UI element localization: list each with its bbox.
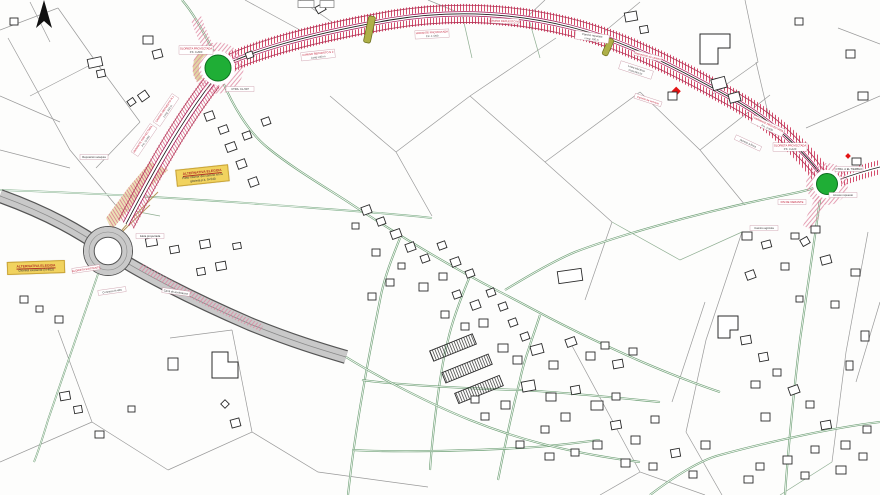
note-text: Glorieta existente (N-403) [10, 267, 62, 273]
building-footprint [859, 453, 867, 460]
building-footprint [800, 236, 810, 246]
building-footprint [791, 233, 799, 239]
map-label-text: P.K. 1+200 [426, 34, 439, 39]
building-footprint [405, 242, 416, 253]
building-footprint [549, 361, 558, 369]
map-label: GLORIETA PROYECTADAP.K. 0+660 [179, 46, 213, 54]
parcel-line [640, 92, 745, 205]
building-footprint [212, 352, 238, 378]
titleblock-fragment [298, 1, 334, 8]
green-roads [182, 0, 880, 495]
building-footprint [701, 441, 710, 449]
building-footprint [863, 426, 871, 433]
building-footprint [55, 316, 63, 323]
building-footprint [261, 117, 271, 126]
parcel-line [330, 96, 432, 216]
building-footprint [811, 226, 820, 233]
building-footprint [128, 406, 135, 412]
building-footprint [586, 352, 595, 360]
building-footprint [820, 255, 832, 265]
map-label: CTRA. CL-507 [226, 87, 254, 92]
building-footprint [610, 420, 621, 430]
building-footprint [740, 335, 751, 345]
building-footprint [508, 318, 518, 327]
building-footprint [851, 269, 860, 276]
building-footprint [486, 288, 496, 297]
building-footprint [439, 273, 447, 280]
map-label: VARIANTE PROYECTADAP.K. 0+400 [131, 124, 157, 157]
road-green [650, 422, 880, 495]
building-footprint [368, 293, 376, 300]
building-footprint [199, 239, 210, 249]
parcel-line [30, 62, 96, 96]
building-footprint [612, 393, 620, 400]
building-footprint [593, 441, 602, 449]
building-footprint [820, 420, 831, 430]
parcel-line [232, 330, 252, 432]
building-footprint [169, 245, 179, 253]
parcel-line [170, 330, 232, 338]
building-footprint [465, 269, 475, 278]
map-label: Camino de servicio [634, 93, 662, 106]
building-footprint [612, 359, 623, 369]
map-label-text: Isleta proyectada [140, 234, 161, 238]
building-footprint [450, 257, 461, 268]
parcel-line [545, 92, 640, 162]
roundabout-east-island [817, 174, 838, 195]
parcel-line [686, 232, 742, 432]
building-footprint [649, 463, 657, 470]
road-green [505, 188, 814, 290]
building-footprint [73, 405, 82, 413]
map-label-text: P.K. 0+660 [190, 50, 203, 54]
building-footprint [10, 18, 18, 25]
building-footprint [242, 131, 252, 140]
road-green [345, 200, 720, 392]
building-footprint [221, 400, 229, 408]
building-footprint [36, 306, 43, 312]
map-label-text: GLORIETA PROYECTADA [774, 143, 807, 147]
building-footprint [530, 344, 544, 356]
map-label: CAMINO REPUESTO N 2Long: 240 m [301, 49, 336, 61]
map-label-text: Camino agricola [754, 226, 774, 230]
building-footprint [372, 249, 380, 256]
building-footprint [781, 263, 789, 270]
building-footprint [601, 342, 609, 349]
building-footprint [419, 283, 428, 291]
parcel-line [672, 302, 705, 402]
roundabout-north-island [205, 55, 231, 81]
building-footprint [386, 279, 394, 286]
building-footprint [565, 337, 577, 348]
parcel-line [806, 96, 880, 128]
map-label: CTRA. A EL TIEMBLO [835, 167, 863, 172]
map-label: Acceso repuesto [829, 193, 857, 198]
building-footprint [87, 57, 103, 69]
corridor-labels: CAMINO REPUESTO N 2Long: 240 mVARIANTE P… [71, 18, 863, 296]
building-footprint [521, 380, 536, 392]
building-footprint [561, 413, 570, 421]
building-footprint [59, 391, 70, 401]
building-footprint [773, 369, 781, 376]
map-label: Camino agricola [750, 226, 778, 231]
building-footprint [700, 34, 730, 64]
building-footprint [742, 232, 752, 240]
building-footprint [20, 296, 28, 303]
building-footprint [501, 401, 510, 409]
building-footprint [811, 446, 819, 453]
building-footprint [858, 92, 868, 100]
building-footprint [546, 393, 556, 401]
building-footprint [841, 441, 850, 449]
building-footprint [795, 18, 803, 25]
building-footprint [788, 385, 800, 396]
building-footprint [570, 385, 580, 394]
building-footprint [670, 448, 680, 457]
building-footprint [796, 296, 803, 302]
building-footprint [751, 381, 760, 388]
building-footprint [631, 436, 640, 444]
parcel-line [838, 28, 880, 44]
building-footprint [689, 471, 697, 478]
building-footprint [545, 453, 554, 460]
road-green [348, 238, 400, 495]
building-footprint [196, 267, 205, 275]
map-label: Conexion N-403 [98, 287, 126, 296]
building-footprint [225, 142, 237, 153]
building-footprint [621, 459, 630, 467]
road-green-core [345, 200, 720, 392]
building-footprint [571, 449, 579, 456]
building-footprint [96, 69, 105, 78]
building-footprint [831, 301, 839, 308]
site-plan-map: CAMINO REPUESTO N 2Long: 240 mVARIANTE P… [0, 0, 880, 495]
north-arrow-icon [36, 0, 52, 28]
building-footprint [481, 413, 489, 420]
building-footprint [513, 356, 522, 364]
building-footprint [498, 302, 508, 311]
building-footprint [498, 344, 508, 352]
parcel-line [168, 432, 428, 487]
building-footprint [95, 431, 104, 438]
map-label: CAMINO REPUESTO N 3 [489, 18, 521, 24]
map-label-text: P.K. 3+120 [784, 147, 797, 151]
building-footprint [801, 472, 809, 479]
parcel-line [245, 0, 300, 30]
building-footprint [215, 261, 226, 271]
building-footprint [352, 223, 359, 229]
map-label-text: CTRA. A EL TIEMBLO [836, 167, 863, 171]
minor-road-southwest [34, 274, 98, 462]
buildings [10, 3, 871, 483]
parcel-line [96, 122, 140, 168]
map-label-text: CTRA. CL-507 [231, 87, 249, 91]
building-footprint [756, 463, 764, 470]
site-plan: CAMINO REPUESTO N 2Long: 240 mVARIANTE P… [0, 0, 880, 495]
building-footprint [846, 361, 853, 370]
building-row-block [442, 354, 492, 383]
existing-highway [0, 196, 346, 357]
building-footprint [639, 25, 648, 33]
building-footprint [541, 426, 549, 433]
building-footprint [168, 358, 178, 370]
building-footprint [591, 401, 603, 410]
building-footprint [629, 348, 637, 355]
building-footprint [557, 268, 582, 283]
parcel-line [856, 302, 880, 382]
building-footprint [761, 413, 770, 421]
road-green-core [348, 238, 400, 495]
building-footprint [520, 332, 530, 341]
building-footprint [470, 300, 481, 311]
building-footprint [516, 441, 524, 448]
building-footprint [437, 241, 447, 250]
building-footprint [218, 125, 229, 135]
building-footprint [745, 270, 756, 281]
map-label-text: GLORIETA PROYECTADA [180, 46, 213, 50]
building-footprint [248, 177, 259, 188]
building-footprint [138, 90, 150, 102]
map-label: GLORIETA PROYECTADAP.K. 3+120 [773, 143, 807, 151]
road-green-core [222, 80, 345, 200]
note-alternative-2: ALTERNATIVA ELEGIDA Glorieta existente (… [7, 260, 65, 275]
map-label-text: Acceso repuesto [833, 193, 854, 197]
building-footprint [744, 476, 753, 483]
map-label-text: Reposicion acequia [82, 155, 106, 159]
building-footprint [718, 316, 738, 338]
building-footprint [758, 352, 768, 361]
road-green-core [505, 188, 814, 290]
building-footprint [651, 416, 659, 423]
building-footprint [668, 92, 677, 100]
building-footprint [783, 456, 792, 464]
parcel-line [396, 38, 556, 152]
building-footprint [761, 240, 772, 249]
parcel-line [0, 96, 60, 122]
building-footprint [479, 319, 488, 327]
parcel-line [612, 222, 742, 260]
building-footprint [204, 111, 215, 122]
parcel-line [0, 150, 70, 168]
parcel-line [585, 222, 612, 300]
parcel-line [600, 472, 640, 495]
building-footprint [361, 205, 372, 216]
parcel-line [470, 96, 612, 222]
map-label: Acceso a finca [734, 135, 761, 151]
building-footprint [471, 396, 479, 403]
building-footprint [441, 311, 449, 318]
building-footprint [127, 98, 136, 107]
building-footprint [852, 158, 861, 165]
building-footprint [846, 50, 855, 58]
road-green [498, 315, 540, 480]
building-footprint [233, 242, 242, 249]
building-footprint [236, 159, 247, 170]
building-footprint [461, 323, 469, 330]
building-footprint [398, 263, 405, 269]
building-footprint [420, 254, 430, 263]
building-footprint [806, 401, 814, 408]
road-green [222, 80, 345, 200]
map-label: Isleta proyectada [136, 234, 164, 239]
building-footprint [861, 331, 869, 341]
building-footprint [152, 49, 163, 59]
building-row-block [430, 334, 477, 361]
building-footprint [836, 466, 846, 474]
parcel-line [58, 330, 168, 470]
building-footprint [143, 36, 153, 44]
map-label: VARIANTE PROYECTADAP.K. 1+200 [415, 29, 449, 39]
building-footprint [624, 11, 637, 22]
map-label-text: FIN DE VARIANTE [781, 200, 804, 204]
road-green-core [650, 422, 880, 495]
road-green-core [498, 315, 540, 480]
building-footprint [230, 418, 241, 428]
map-label: FIN DE VARIANTE [778, 200, 806, 205]
map-label: Reposicion acequia [80, 155, 108, 160]
